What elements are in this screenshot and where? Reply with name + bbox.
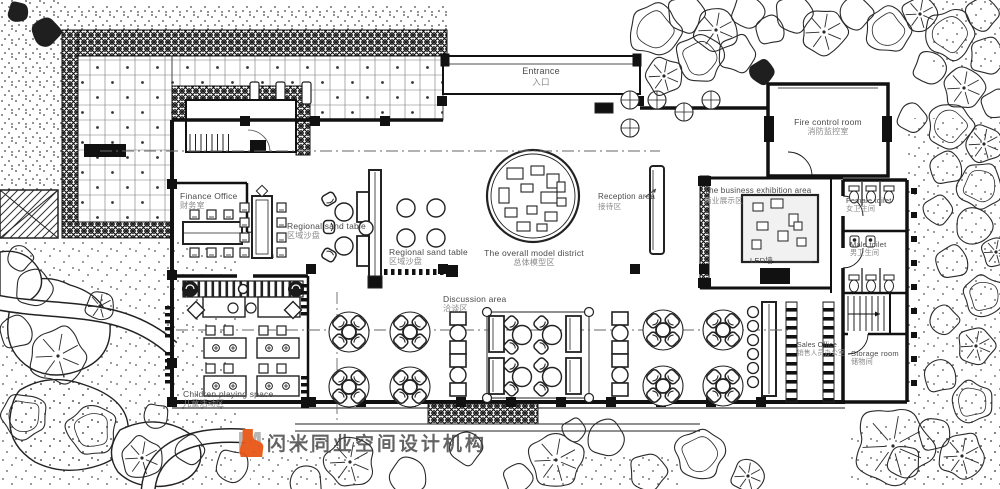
finance-table <box>183 222 242 244</box>
label-led-wall: LED墙 <box>750 256 790 265</box>
floor-plan: Entrance 入口 Fire control room 消防监控室 The … <box>0 0 1000 489</box>
adjacent-roof <box>0 190 58 238</box>
label-storage-room: Storage room 储物间 <box>851 349 911 367</box>
label-entrance: Entrance 入口 <box>506 66 576 87</box>
label-children-playing-space: Children playing space 儿童活动区 <box>183 389 303 409</box>
logo-mark-icon <box>237 427 265 459</box>
label-regional-sand-table-2: Regional sand table 区域沙盘 <box>389 247 484 267</box>
bar-counter <box>762 302 776 396</box>
sand-table-1 <box>252 185 272 258</box>
label-female-toilet: Female toilet 女卫生间 <box>846 196 908 214</box>
label-overall-model-district: The overall model district 总体模型区 <box>468 248 600 268</box>
label-discussion-area: Discussion area 洽谈区 <box>443 294 533 314</box>
label-sales-office: Sales Office 销售人员办公室 <box>797 342 852 358</box>
label-zh: 入口 <box>506 77 576 87</box>
logo-name: 闪米同业空间设计机构 <box>267 429 487 456</box>
label-reception-area: Reception area 接待区 <box>598 192 660 211</box>
label-finance-office: Finance Office 财务室 <box>180 191 250 211</box>
label-en: Entrance <box>522 66 560 76</box>
studio-logo: M 闪米同业空间设计机构 <box>237 427 487 458</box>
label-male-toilet: Male toilet 男卫生间 <box>850 240 912 258</box>
label-business-exhibition-area: The business exhibition area 商业展示区 <box>704 186 844 205</box>
label-regional-sand-table-1: Regional sand table 区域沙盘 <box>287 221 382 241</box>
children-canopy <box>182 281 304 297</box>
label-fire-control-room: Fire control room 消防监控室 <box>772 117 884 137</box>
